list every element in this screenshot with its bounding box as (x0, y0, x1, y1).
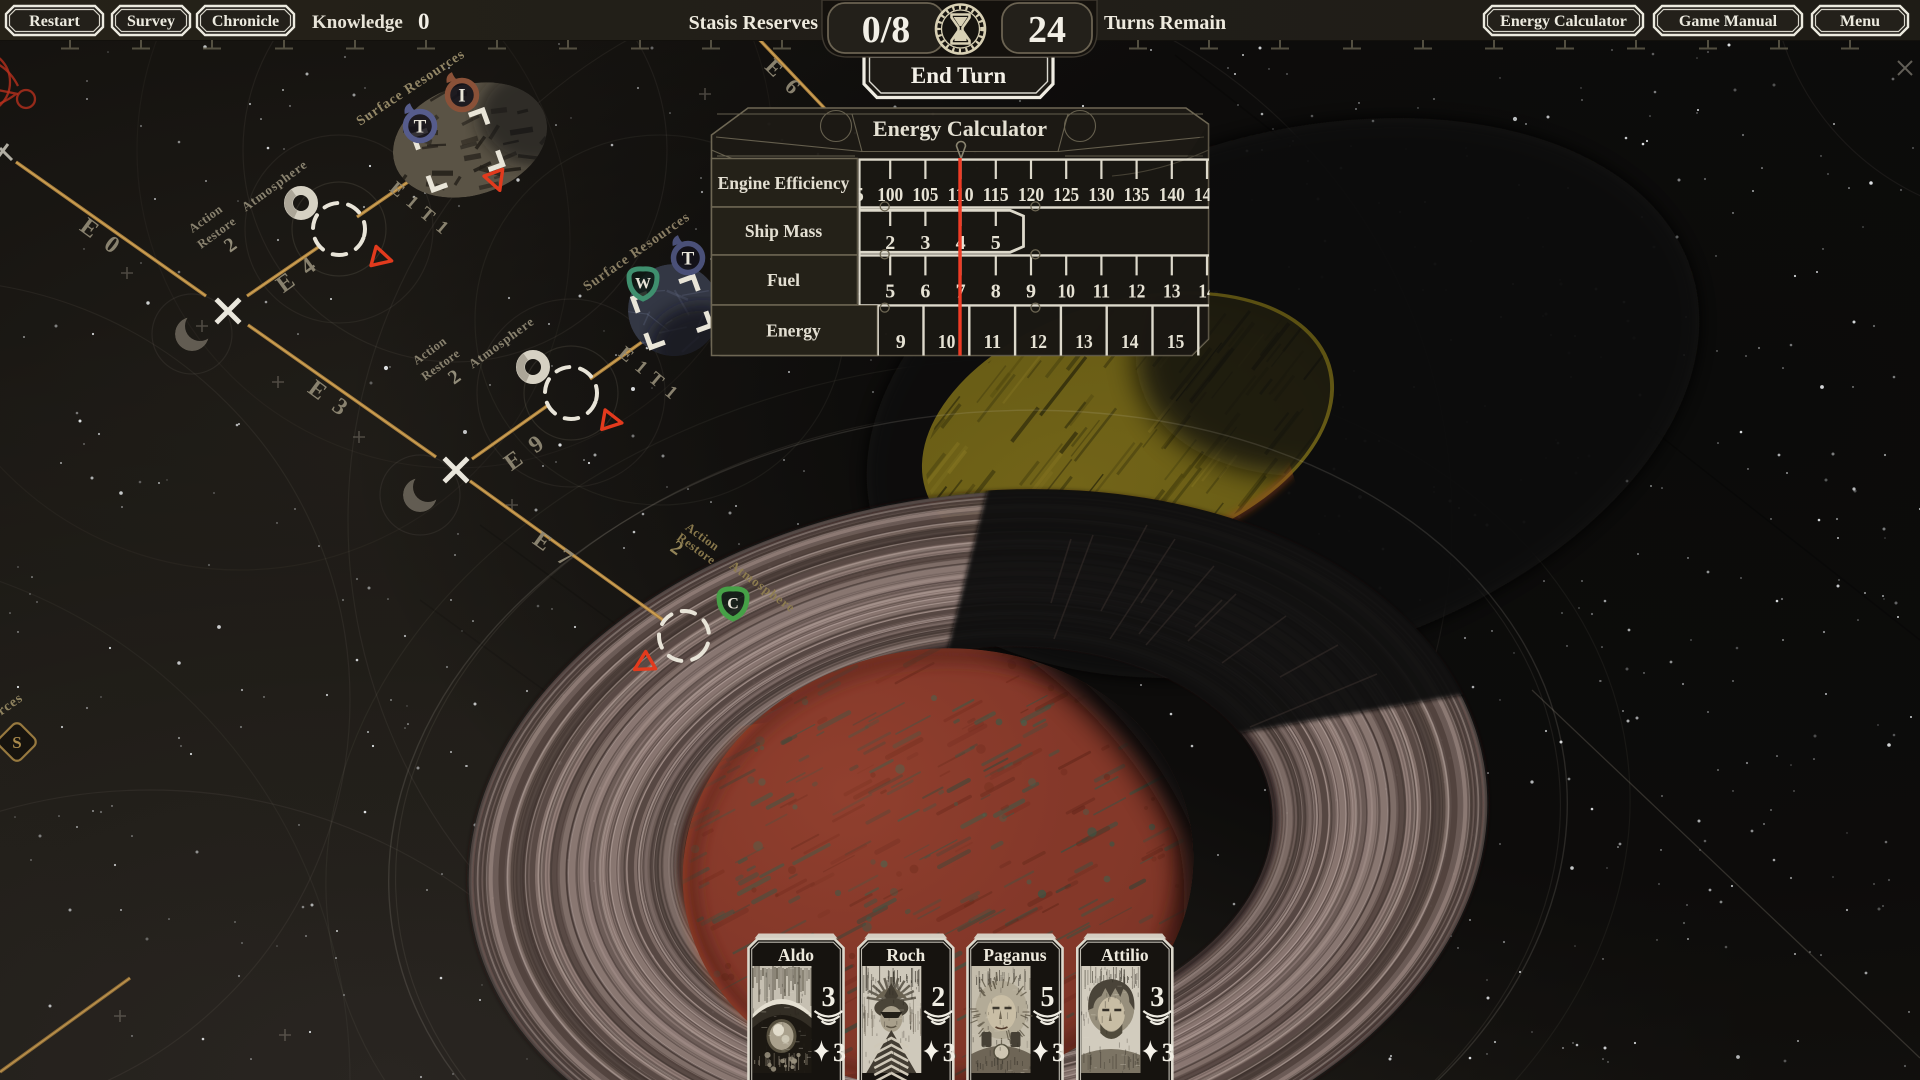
svg-text:9: 9 (1026, 281, 1036, 303)
svg-text:11: 11 (984, 331, 1002, 353)
svg-text:135: 135 (1124, 184, 1150, 206)
svg-text:C: C (727, 596, 739, 613)
svg-text:15: 15 (1167, 331, 1185, 353)
svg-text:Fuel: Fuel (767, 270, 800, 290)
svg-text:Knowledge: Knowledge (312, 12, 403, 33)
svg-text:24: 24 (1028, 9, 1066, 51)
svg-text:5: 5 (885, 281, 895, 303)
svg-text:Restart: Restart (29, 13, 80, 30)
svg-text:12: 12 (1029, 331, 1047, 353)
svg-text:125: 125 (1053, 184, 1079, 206)
svg-text:Ship Mass: Ship Mass (745, 221, 823, 241)
svg-text:8: 8 (991, 281, 1001, 303)
svg-text:130: 130 (1088, 184, 1114, 206)
svg-text:3: 3 (943, 1038, 956, 1067)
svg-text:5: 5 (1041, 982, 1055, 1013)
svg-text:Roch: Roch (886, 945, 925, 965)
svg-text:0/8: 0/8 (862, 9, 911, 51)
svg-text:3: 3 (833, 1038, 846, 1067)
svg-text:3: 3 (920, 232, 930, 254)
svg-text:Energy: Energy (766, 320, 821, 340)
svg-text:Survey: Survey (127, 13, 175, 30)
svg-text:6: 6 (920, 281, 930, 303)
svg-text:105: 105 (912, 184, 938, 206)
svg-text:Menu: Menu (1840, 13, 1880, 30)
svg-text:140: 140 (1159, 184, 1185, 206)
svg-text:3: 3 (1150, 982, 1164, 1013)
svg-text:T: T (414, 117, 427, 138)
svg-text:Energy Calculator: Energy Calculator (873, 116, 1047, 141)
svg-text:Energy Calculator: Energy Calculator (1500, 13, 1627, 30)
svg-text:Engine Efficiency: Engine Efficiency (718, 173, 850, 193)
svg-text:120: 120 (1018, 184, 1044, 206)
svg-text:Game Manual: Game Manual (1679, 13, 1778, 30)
svg-text:12: 12 (1128, 281, 1146, 303)
svg-text:3: 3 (822, 982, 836, 1013)
svg-text:3: 3 (1162, 1038, 1175, 1067)
svg-text:9: 9 (896, 331, 906, 353)
svg-text:Paganus: Paganus (983, 945, 1046, 965)
svg-text:T: T (682, 249, 695, 270)
svg-text:10: 10 (1057, 281, 1075, 303)
svg-text:13: 13 (1163, 281, 1181, 303)
svg-text:S: S (12, 733, 21, 752)
svg-text:0: 0 (418, 9, 430, 34)
svg-text:100: 100 (877, 184, 903, 206)
svg-text:Turns Remain: Turns Remain (1104, 12, 1226, 34)
svg-text:Stasis Reserves: Stasis Reserves (689, 12, 819, 34)
svg-text:W: W (635, 276, 651, 293)
svg-text:3: 3 (1052, 1038, 1065, 1067)
svg-text:Aldo: Aldo (778, 945, 814, 965)
svg-text:Attilio: Attilio (1101, 945, 1149, 965)
svg-text:2: 2 (931, 982, 945, 1013)
svg-text:I: I (458, 86, 465, 107)
svg-text:13: 13 (1075, 331, 1093, 353)
svg-text:115: 115 (983, 184, 1009, 206)
svg-text:End Turn: End Turn (911, 63, 1006, 88)
svg-text:Chronicle: Chronicle (212, 13, 279, 30)
svg-text:14: 14 (1121, 331, 1139, 353)
svg-text:10: 10 (938, 331, 956, 353)
svg-text:5: 5 (991, 232, 1001, 254)
svg-text:11: 11 (1093, 281, 1111, 303)
